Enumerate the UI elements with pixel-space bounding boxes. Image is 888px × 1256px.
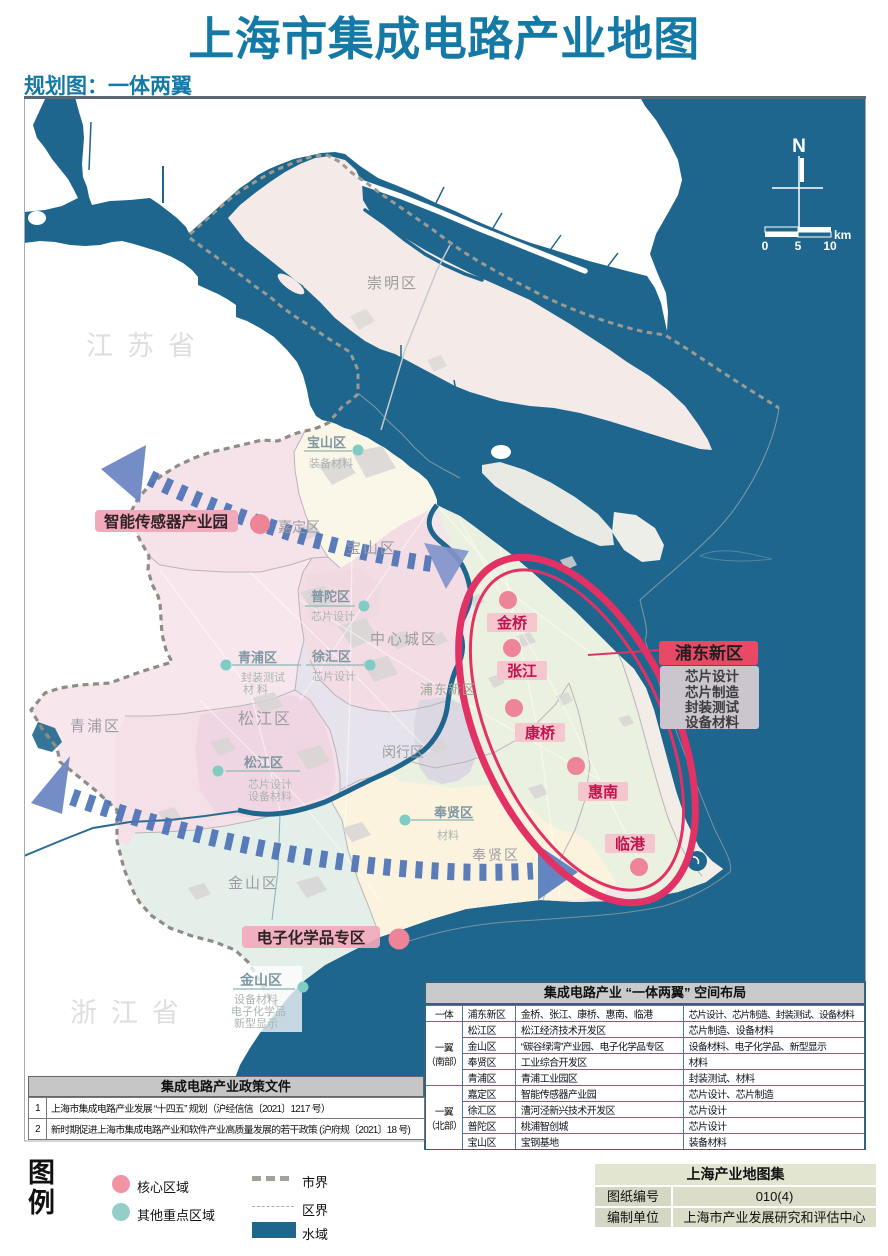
svg-text:芯片制造: 芯片制造 [685,684,739,700]
svg-text:青浦区: 青浦区 [238,650,277,665]
svg-text:金桥: 金桥 [496,614,528,632]
svg-text:电子化学品: 电子化学品 [231,1004,286,1018]
svg-text:浙江省: 浙江省 [70,998,193,1028]
svg-text:装备材料: 装备材料 [309,456,353,470]
svg-text:江苏省: 江苏省 [86,331,209,361]
svg-text:材 料: 材 料 [243,682,268,696]
svg-text:芯片设计: 芯片设计 [248,777,292,791]
svg-text:康桥: 康桥 [525,724,556,742]
svg-text:N: N [792,136,806,157]
svg-text:设备材料: 设备材料 [248,789,292,803]
svg-text:松江区: 松江区 [238,710,292,728]
svg-text:浦东新区: 浦东新区 [675,643,743,663]
svg-text:金山区: 金山区 [239,972,282,988]
svg-text:崇明区: 崇明区 [367,275,418,292]
svg-text:青浦区: 青浦区 [70,718,121,735]
svg-text:封装测试: 封装测试 [241,670,285,684]
svg-text:封装测试: 封装测试 [685,699,739,715]
svg-text:金山区: 金山区 [228,875,279,892]
svg-text:惠南: 惠南 [588,783,618,801]
svg-text:中心城区: 中心城区 [370,631,438,648]
svg-text:10: 10 [823,239,837,253]
svg-text:设备材料: 设备材料 [685,714,739,730]
svg-text:嘉定区: 嘉定区 [278,519,320,535]
svg-text:设备材料: 设备材料 [234,992,278,1006]
svg-text:浦东新区: 浦东新区 [420,682,476,697]
svg-text:智能传感器产业园: 智能传感器产业园 [104,512,228,531]
svg-text:闵行区: 闵行区 [382,744,424,760]
svg-text:0: 0 [762,239,769,253]
svg-text:宝山区: 宝山区 [307,435,346,450]
svg-text:芯片设计: 芯片设计 [311,609,355,623]
svg-text:5: 5 [795,239,802,253]
svg-text:新型显示: 新型显示 [234,1016,278,1030]
svg-text:张江: 张江 [507,662,537,680]
svg-text:松江区: 松江区 [244,755,283,770]
svg-text:芯片设计: 芯片设计 [685,668,739,684]
svg-text:芯片设计: 芯片设计 [312,669,356,683]
svg-text:奉贤区: 奉贤区 [472,847,520,863]
svg-text:徐汇区: 徐汇区 [311,649,351,664]
svg-text:材料: 材料 [437,828,459,842]
svg-text:电子化学品专区: 电子化学品专区 [257,928,366,947]
svg-text:奉贤区: 奉贤区 [433,805,473,820]
svg-text:临港: 临港 [615,835,646,853]
svg-text:宝山区: 宝山区 [346,540,397,557]
svg-text:普陀区: 普陀区 [311,589,350,604]
